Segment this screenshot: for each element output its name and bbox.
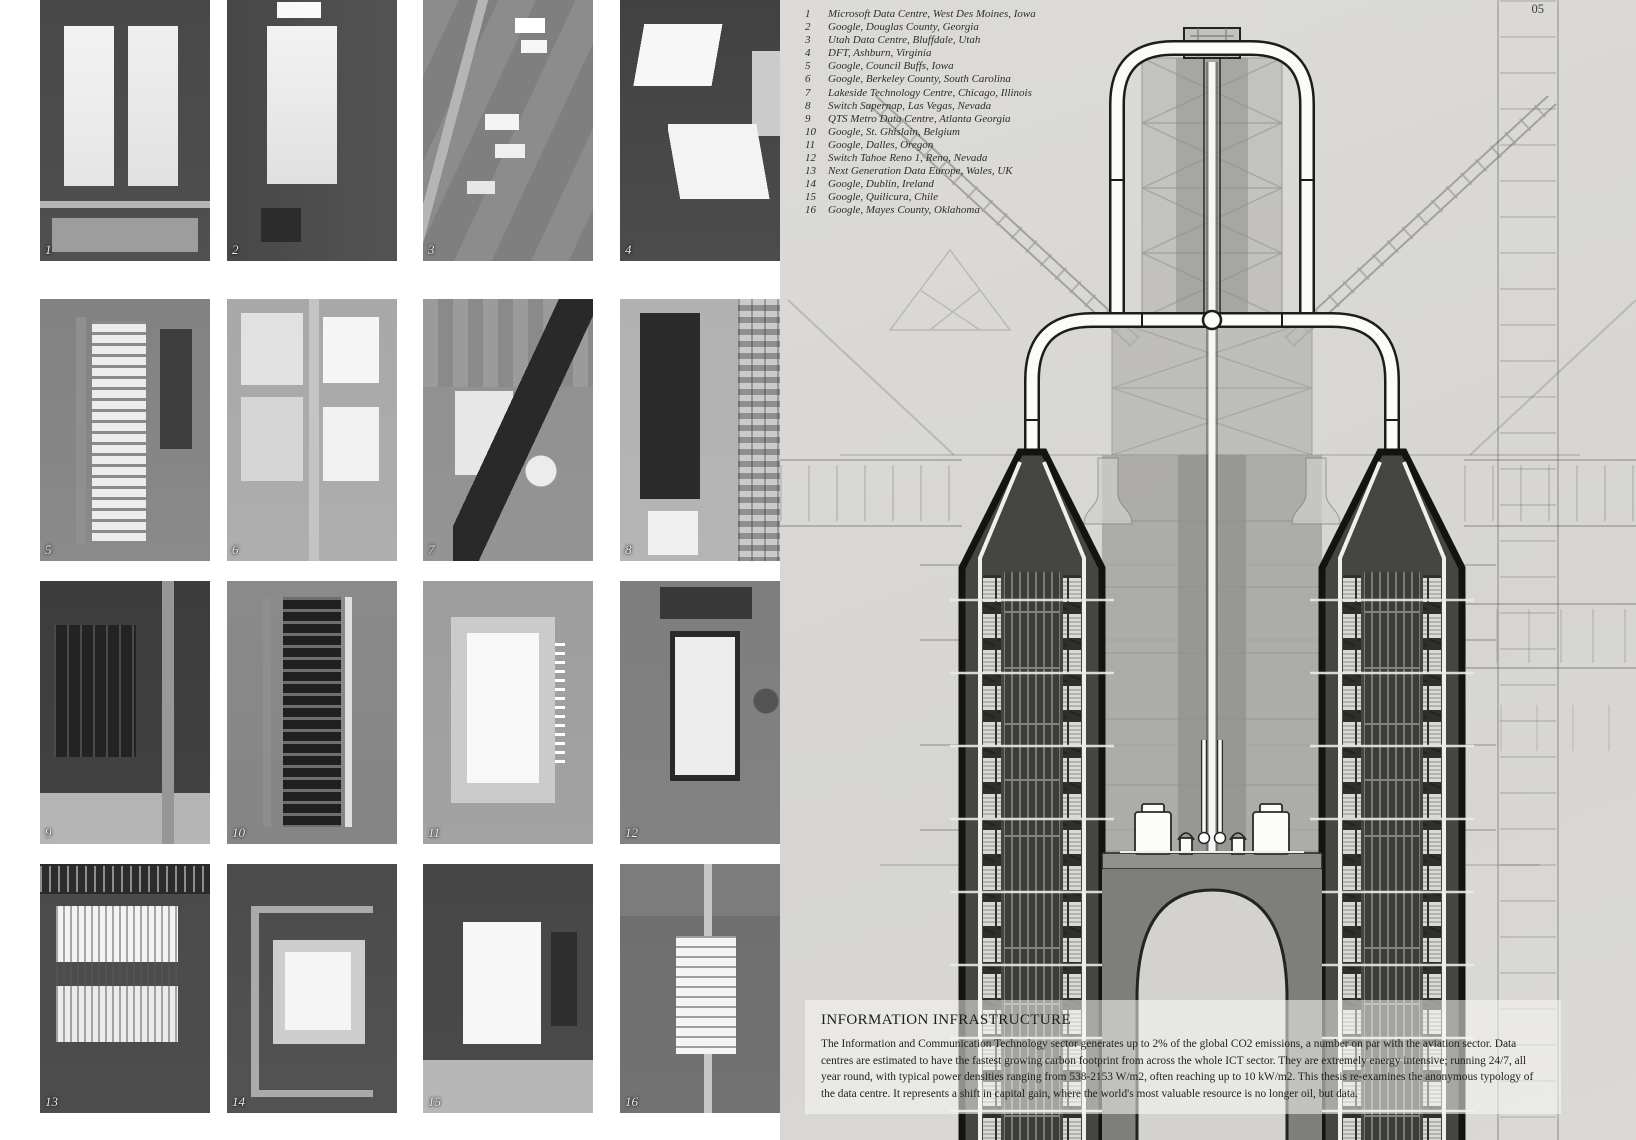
satellite-tile: 13 — [40, 864, 210, 1113]
legend-item-number: 7 — [805, 87, 821, 100]
tile-number: 9 — [45, 825, 52, 841]
legend-item-number: 6 — [805, 73, 821, 86]
legend-item-number: 11 — [805, 139, 821, 152]
satellite-tile: 3 — [423, 0, 593, 261]
legend-item: 9 QTS Metro Data Centre, Atlanta Georgia — [805, 113, 1036, 126]
legend-item-label: Utah Data Centre, Bluffdale, Utah — [828, 34, 980, 47]
legend-item-number: 12 — [805, 152, 821, 165]
legend-item: 6 Google, Berkeley County, South Carolin… — [805, 73, 1036, 86]
satellite-tile: 16 — [620, 864, 790, 1113]
legend-item-number: 13 — [805, 165, 821, 178]
legend-item-label: Google, Dalles, Oregon — [828, 139, 933, 152]
legend-item: 15 Google, Quilicura, Chile — [805, 191, 1036, 204]
satellite-tile: 9 — [40, 581, 210, 844]
legend-item: 13 Next Generation Data Europe, Wales, U… — [805, 165, 1036, 178]
tile-number: 2 — [232, 242, 239, 258]
legend-item-number: 10 — [805, 126, 821, 139]
page-number: 05 — [1532, 2, 1545, 17]
legend-item-number: 15 — [805, 191, 821, 204]
info-panel: INFORMATION INFRASTRUCTURE The Informati… — [805, 1000, 1561, 1114]
legend-item: 5 Google, Council Buffs, Iowa — [805, 60, 1036, 73]
info-title: INFORMATION INFRASTRUCTURE — [821, 1012, 1543, 1029]
satellite-tile: 4 — [620, 0, 790, 261]
thesis-page: 1 2 3 4 5 6 7 8 9 10 — [0, 0, 1636, 1140]
legend-item-number: 9 — [805, 113, 821, 126]
satellite-tile: 15 — [423, 864, 593, 1113]
legend-item-label: Google, Mayes County, Oklahoma — [828, 204, 980, 217]
legend-item: 12 Switch Tahoe Reno 1, Reno, Nevada — [805, 152, 1036, 165]
legend-item: 3 Utah Data Centre, Bluffdale, Utah — [805, 34, 1036, 47]
satellite-tile: 7 — [423, 299, 593, 561]
tile-number: 16 — [625, 1094, 638, 1110]
legend-item-label: Next Generation Data Europe, Wales, UK — [828, 165, 1013, 178]
legend-item: 16 Google, Mayes County, Oklahoma — [805, 204, 1036, 217]
info-body: The Information and Communication Techno… — [821, 1036, 1543, 1102]
datacentre-legend: 1 Microsoft Data Centre, West Des Moines… — [805, 8, 1036, 218]
tile-number: 15 — [428, 1094, 441, 1110]
satellite-grid: 1 2 3 4 5 6 7 8 9 10 — [0, 0, 760, 1140]
tile-number: 5 — [45, 542, 52, 558]
legend-item-label: DFT, Ashburn, Virginia — [828, 47, 932, 60]
legend-item-number: 1 — [805, 8, 821, 21]
satellite-tile: 1 — [40, 0, 210, 261]
satellite-tile: 11 — [423, 581, 593, 844]
legend-item: 4 DFT, Ashburn, Virginia — [805, 47, 1036, 60]
legend-item: 8 Switch Supernap, Las Vegas, Nevada — [805, 100, 1036, 113]
tile-number: 8 — [625, 542, 632, 558]
legend-item-number: 5 — [805, 60, 821, 73]
tile-number: 6 — [232, 542, 239, 558]
legend-item-number: 3 — [805, 34, 821, 47]
tile-number: 13 — [45, 1094, 58, 1110]
tile-number: 3 — [428, 242, 435, 258]
legend-item-label: Google, Douglas County, Georgia — [828, 21, 979, 34]
satellite-tile: 5 — [40, 299, 210, 561]
tile-number: 11 — [428, 825, 440, 841]
legend-item-label: Lakeside Technology Centre, Chicago, Ill… — [828, 87, 1032, 100]
legend-item-label: Google, St. Ghislain, Belgium — [828, 126, 960, 139]
legend-item-label: Google, Quilicura, Chile — [828, 191, 938, 204]
legend-item: 11 Google, Dalles, Oregon — [805, 139, 1036, 152]
satellite-tile: 12 — [620, 581, 790, 844]
tile-number: 10 — [232, 825, 245, 841]
legend-item: 7 Lakeside Technology Centre, Chicago, I… — [805, 87, 1036, 100]
satellite-tile: 6 — [227, 299, 397, 561]
satellite-tile: 8 — [620, 299, 790, 561]
satellite-tile: 10 — [227, 581, 397, 844]
legend-item-label: Google, Berkeley County, South Carolina — [828, 73, 1011, 86]
legend-item-number: 4 — [805, 47, 821, 60]
legend-item-number: 2 — [805, 21, 821, 34]
legend-item-number: 16 — [805, 204, 821, 217]
tile-number: 14 — [232, 1094, 245, 1110]
tile-number: 12 — [625, 825, 638, 841]
tile-number: 1 — [45, 242, 52, 258]
legend-item: 10 Google, St. Ghislain, Belgium — [805, 126, 1036, 139]
legend-item-label: Switch Tahoe Reno 1, Reno, Nevada — [828, 152, 987, 165]
legend-item-number: 8 — [805, 100, 821, 113]
satellite-tile: 14 — [227, 864, 397, 1113]
legend-item: 14 Google, Dublin, Ireland — [805, 178, 1036, 191]
legend-item-label: Google, Dublin, Ireland — [828, 178, 934, 191]
tile-number: 7 — [428, 542, 435, 558]
satellite-tile: 2 — [227, 0, 397, 261]
legend-item-number: 14 — [805, 178, 821, 191]
legend-item-label: QTS Metro Data Centre, Atlanta Georgia — [828, 113, 1011, 126]
tile-number: 4 — [625, 242, 632, 258]
drawing-page: 05 1 Microsoft Data Centre, West Des Moi… — [780, 0, 1636, 1140]
legend-item: 1 Microsoft Data Centre, West Des Moines… — [805, 8, 1036, 21]
legend-item-label: Microsoft Data Centre, West Des Moines, … — [828, 8, 1036, 21]
legend-item-label: Switch Supernap, Las Vegas, Nevada — [828, 100, 991, 113]
legend-item: 2 Google, Douglas County, Georgia — [805, 21, 1036, 34]
legend-item-label: Google, Council Buffs, Iowa — [828, 60, 954, 73]
